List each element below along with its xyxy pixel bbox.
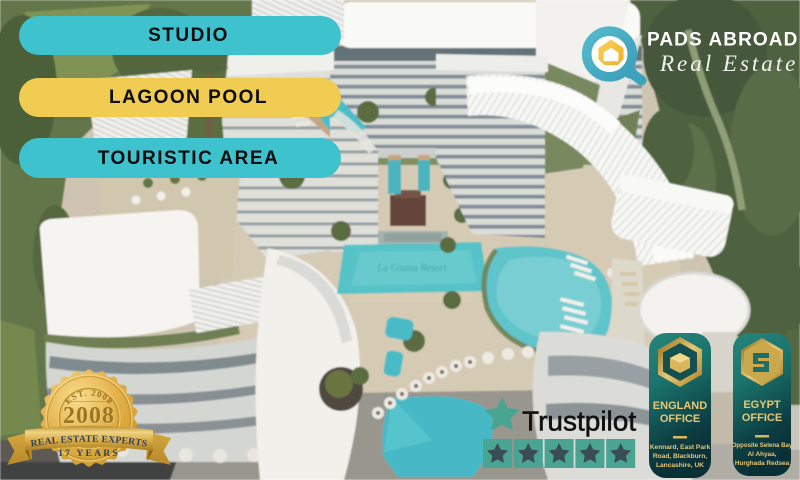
svg-text:Road, Blackburn,: Road, Blackburn, (653, 453, 707, 460)
svg-text:ENGLAND: ENGLAND (653, 400, 707, 412)
svg-text:Al Ahyaa,: Al Ahyaa, (748, 451, 777, 458)
svg-text:Kennard, East Park: Kennard, East Park (650, 444, 711, 451)
svg-text:Lancashire, UK: Lancashire, UK (656, 462, 704, 469)
svg-text:EGYPT: EGYPT (743, 399, 781, 411)
svg-text:17 YEARS: 17 YEARS (58, 448, 120, 459)
svg-text:Hurghada Redsea: Hurghada Redsea (735, 460, 790, 467)
svg-text:Real Estate: Real Estate (659, 51, 798, 76)
svg-text:Trustpilot: Trustpilot (522, 406, 636, 437)
svg-text:2008: 2008 (63, 403, 115, 429)
svg-text:OFFICE: OFFICE (660, 413, 700, 425)
svg-text:Opposite Selena Bay: Opposite Selena Bay (733, 442, 791, 449)
svg-text:OFFICE: OFFICE (742, 412, 782, 424)
svg-text:PADS ABROAD: PADS ABROAD (647, 30, 798, 51)
